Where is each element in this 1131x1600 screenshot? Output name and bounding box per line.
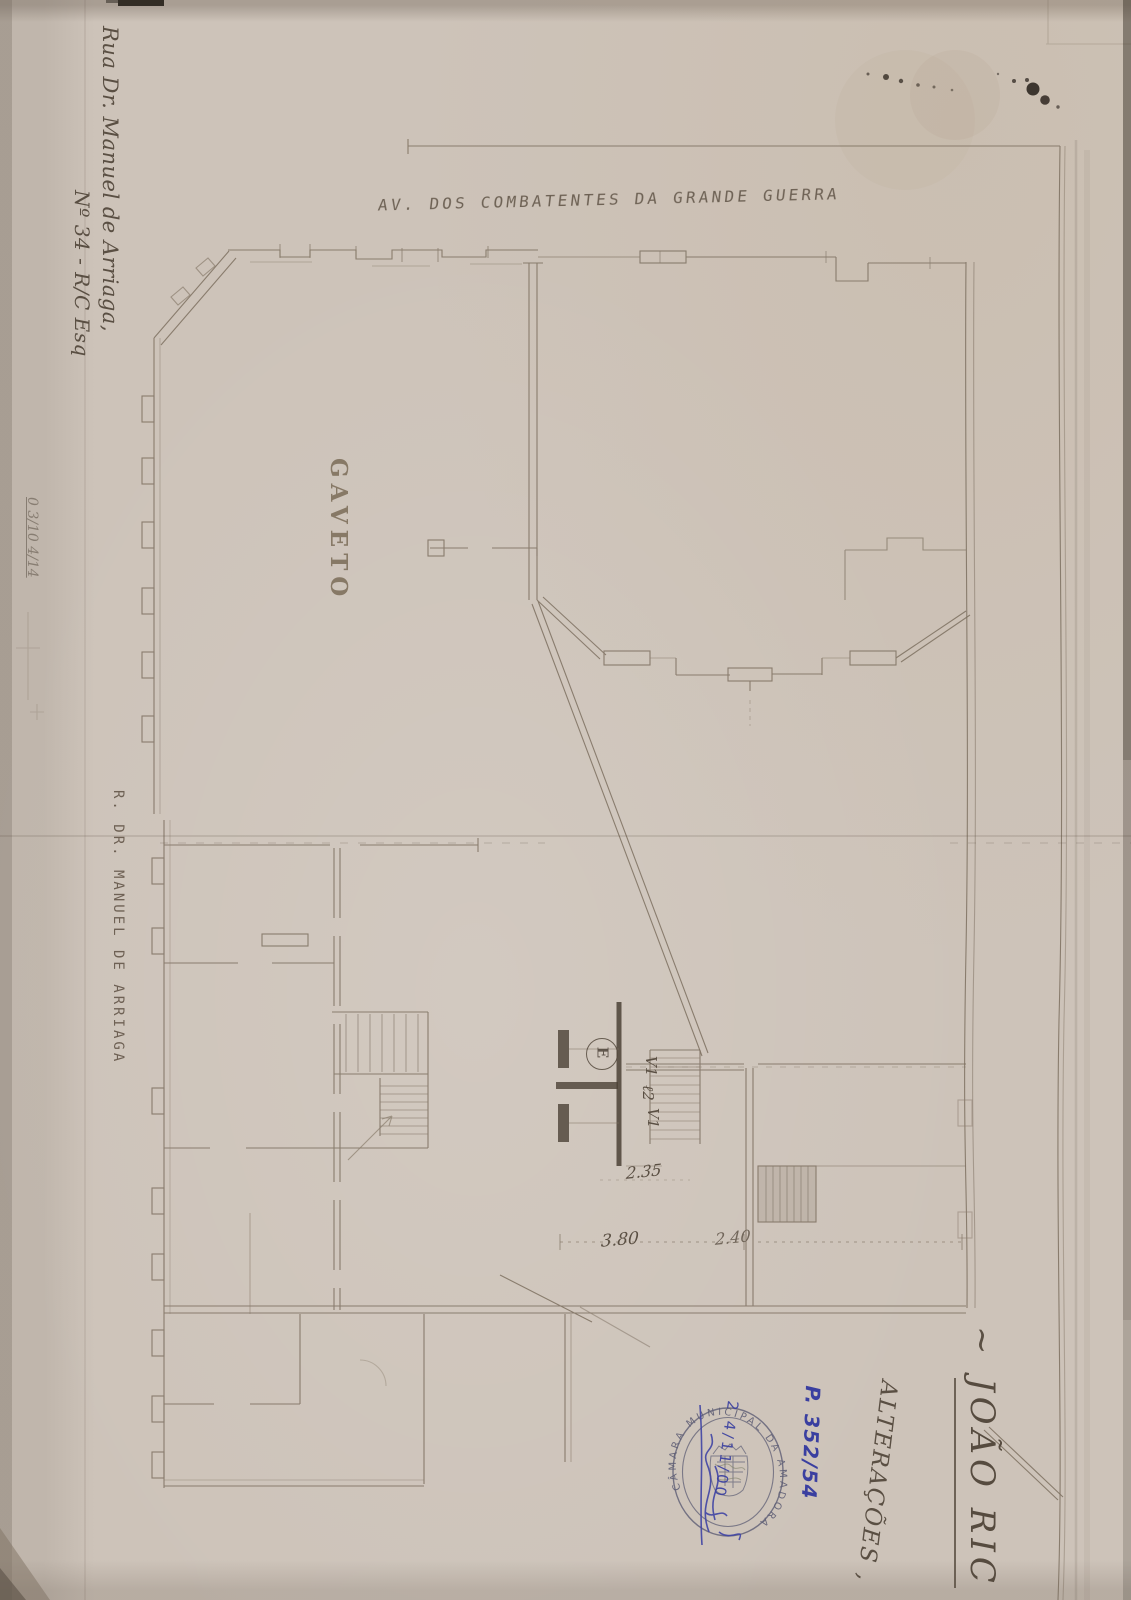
pencil-reference-note: 0 3/10 4/14 [24,497,40,578]
gaveto-label: GAVETO [325,458,352,602]
plan-bay-and-diagonals [532,597,970,1056]
door-label-l2: ℓ2 [638,1085,657,1101]
process-number: P. 352/54 [797,1385,825,1500]
scanned-floor-plan-page: AV. DOS COMBATENTES DA GRANDE GUERRA Rua… [0,0,1131,1600]
dimension-2-35: 2.35 [625,1160,662,1183]
street-label: R. DR. MANUEL DE ARRIAGA [110,790,126,1064]
plan-lower-apartment [16,612,1063,1500]
window-label-v1-bottom: V1 [644,1108,662,1128]
dimension-3-80: 3.80 [601,1228,640,1251]
entrance-letter: E [589,1038,616,1068]
address-line2: Nº 34 - R/C Esq [70,190,94,357]
entrance-marker: E [586,1038,618,1070]
plan-entrance-walls [556,1002,619,1166]
floor-plan-drawing [0,0,1131,1600]
dimension-2-40: 2.40 [715,1226,751,1249]
window-label-v1-top: V1 [642,1056,660,1076]
tilde-mark: ~ [962,1326,1002,1355]
address-line1: Rua Dr. Manuel de Arriaga, [98,26,122,332]
plan-exterior-walls [142,0,1131,1600]
ink-blobs [835,50,1060,190]
owner-name: JOÃO RIC [954,1378,1002,1588]
